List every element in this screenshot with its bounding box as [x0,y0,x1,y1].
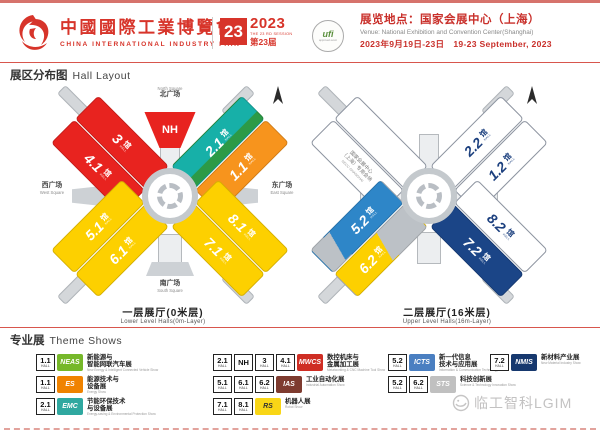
lgim-logo-icon [452,394,470,412]
ciif-flower-logo [10,12,56,56]
venue-en: Venue: National Exhibition and Conventio… [360,30,552,36]
south-square-label: 南广场 South Square [120,280,220,294]
venue-dates: 2023年9月19日-23日 19-23 September, 2023 [360,40,552,49]
neas-logo: NEAS [57,354,83,371]
north-square-label: North Square 北广场 [120,86,220,100]
session-subtitle: THE 23 RD SESSION [250,33,292,37]
hall-nh: NH [141,112,199,148]
session-number-badge: 23 [220,18,247,45]
south-corridor [417,232,441,264]
rs-logo: RS [255,398,281,415]
session-cn: 第23届 [250,38,292,47]
legend-entry-ias: 5.1HALL 6.1HALL 6.2HALL IAS 工业自动化展Indust… [213,376,385,394]
legend-entry-emc: 2.1HALL EMC 节能环保技术与设备展Energy-saving & En… [36,398,158,416]
lower-map-caption: 一层展厅(0米层) Lower Level Halls(0m-Layer) [8,304,318,325]
sts-logo: STS [430,376,456,393]
legend-entry-neas: 1.1HALL NEAS 新能源与智能网联汽车展New Energy & Int… [36,354,158,372]
legend-entry-sts: 5.2HALL 6.2HALL STS 科技创新展Science & Techn… [388,376,516,394]
north-compass-icon [270,86,286,106]
ufi-logo: ufi approved event [312,20,344,52]
venue-cn: 展览地点：国家会展中心（上海） [360,15,552,27]
fair-title-block: 中國國際工業博覽會 CHINA INTERNATIONAL INDUSTRY F… [60,13,241,48]
header: 中國國際工業博覽會 CHINA INTERNATIONAL INDUSTRY F… [0,3,600,62]
fair-title-en: CHINA INTERNATIONAL INDUSTRY FAIR [60,41,241,48]
nmis-logo: NMIS [511,354,537,371]
lower-level-map: 3 馆HALL 4.1 馆HALL 2.1 馆HALL 1.1 馆HALL 5.… [8,84,318,328]
legend-column-4: 7.2HALL NMIS 新材料产业展New Material Industry… [490,354,581,372]
legend-column-2: 2.1HALL NH 3HALL 4.1HALL MWCS 数控机床与金属加工展… [213,354,385,416]
upper-level-map: 国家会展中心 （上海）专用会场 NECC-SHANGHAI 2.2 馆HALL … [302,84,592,328]
fair-title-cn: 中國國際工業博覽會 [60,13,241,38]
theme-shows-heading: 专业展 Theme Shows [10,332,122,348]
es-logo: ES [57,376,83,393]
hall-layout-heading: 展区分布图 Hall Layout [10,67,131,83]
legend-entry-mwcs: 2.1HALL NH 3HALL 4.1HALL MWCS 数控机床与金属加工展… [213,354,385,372]
south-corridor [158,234,182,264]
south-entrance-wedge [146,262,194,276]
bottom-dashed-rule [4,428,596,430]
header-divider-rule [0,62,600,63]
ias-logo: IAS [276,376,302,393]
north-compass-icon [524,86,540,106]
west-square-label: 西广场 West Square [22,182,82,196]
central-hub [401,168,457,224]
watermark: 临工智科LGIM [452,393,572,413]
legend-entry-es: 1.1HALL ES 能源技术与设备展Energy Show [36,376,158,394]
watermark-text: 临工智科LGIM [474,393,572,413]
icts-logo: ICTS [409,354,435,371]
header-vertical-divider [212,17,213,49]
venue-block: 展览地点：国家会展中心（上海） Venue: National Exhibiti… [360,15,552,49]
legend-column-1: 1.1HALL NEAS 新能源与智能网联汽车展New Energy & Int… [36,354,158,416]
central-hub [142,168,198,224]
emc-logo: EMC [57,398,83,415]
session-year: 2023 [250,16,292,31]
session-info: 2023 THE 23 RD SESSION 第23届 [250,16,292,47]
upper-map-caption: 二层展厅(16米层) Upper Level Halls(16m-Layer) [302,304,592,325]
legend-entry-nmis: 7.2HALL NMIS 新材料产业展New Material Industry… [490,354,581,372]
legend-entry-rs: 7.1HALL 8.1HALL RS 机器人展Robot Show [213,398,385,416]
mwcs-logo: MWCS [297,354,323,371]
